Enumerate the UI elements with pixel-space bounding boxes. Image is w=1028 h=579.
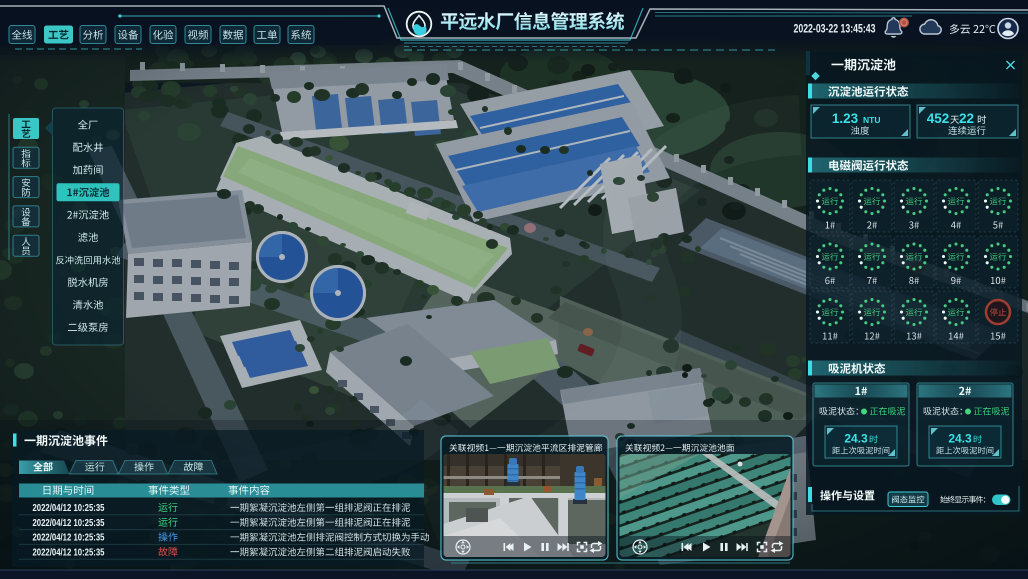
svg-text:1.23: 1.23 xyxy=(832,111,859,126)
svg-text:452: 452 xyxy=(927,111,950,126)
svg-text:2022/04/12 10:25:35: 2022/04/12 10:25:35 xyxy=(33,502,105,514)
svg-text:2022/04/12 10:25:35: 2022/04/12 10:25:35 xyxy=(33,546,105,558)
svg-text:2022/04/12 10:25:35: 2022/04/12 10:25:35 xyxy=(33,517,105,529)
svg-text:2022/04/12 10:25:35: 2022/04/12 10:25:35 xyxy=(33,532,105,544)
svg-text:24.3: 24.3 xyxy=(844,432,868,446)
svg-text:NTU: NTU xyxy=(863,115,880,125)
svg-text:24.3: 24.3 xyxy=(948,432,972,446)
svg-text:2022-03-22 13:45:43: 2022-03-22 13:45:43 xyxy=(794,24,876,36)
svg-text:22: 22 xyxy=(959,111,974,126)
